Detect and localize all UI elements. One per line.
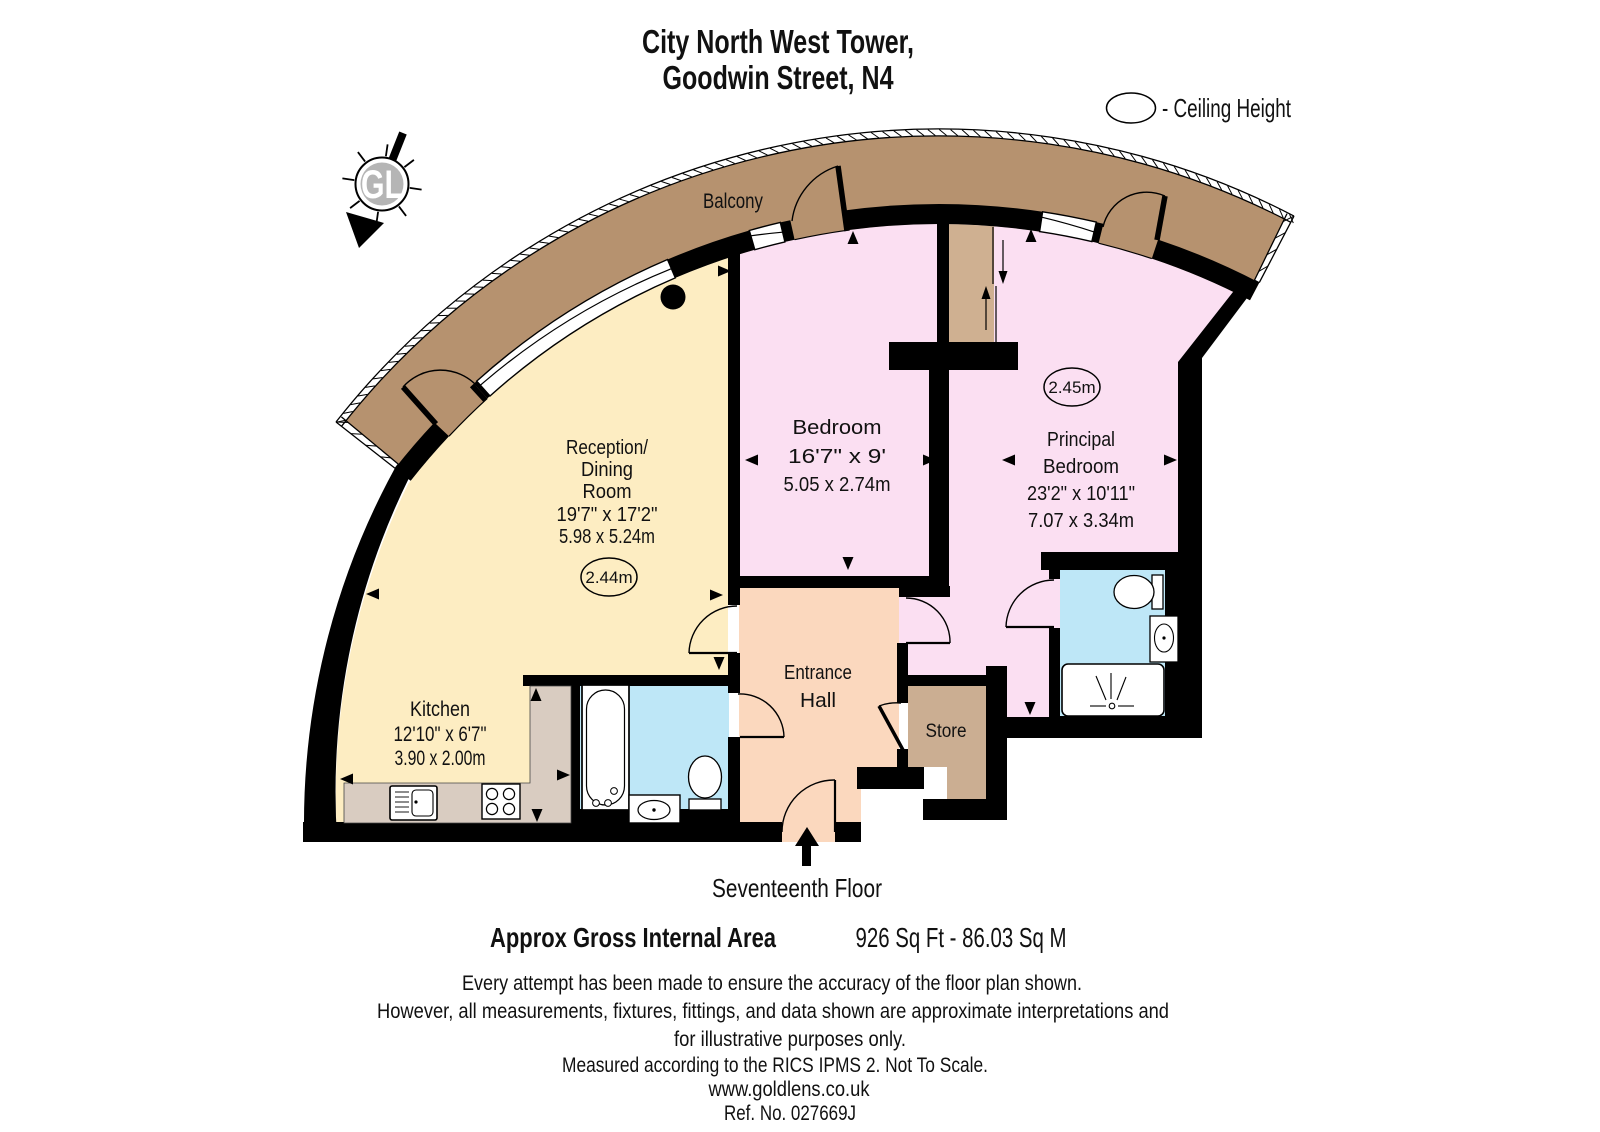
svg-text:GL: GL (361, 163, 403, 207)
svg-text:Bedroom: Bedroom (793, 417, 882, 439)
svg-text:16'7" x 9': 16'7" x 9' (788, 446, 886, 468)
svg-text:5.98 x 5.24m: 5.98 x 5.24m (559, 526, 655, 548)
svg-text:23'2" x 10'11": 23'2" x 10'11" (1027, 483, 1135, 505)
svg-text:19'7" x 17'2": 19'7" x 17'2" (557, 504, 658, 526)
svg-text:926 Sq Ft - 86.03 Sq M: 926 Sq Ft - 86.03 Sq M (856, 922, 1067, 953)
svg-text:Principal: Principal (1047, 429, 1115, 451)
svg-text:2.45m: 2.45m (1048, 378, 1095, 397)
svg-text:Store: Store (926, 721, 967, 742)
svg-text:Ref. No. 027669J: Ref. No. 027669J (724, 1102, 856, 1125)
svg-text:Room: Room (583, 481, 632, 503)
svg-text:for illustrative purposes only: for illustrative purposes only. (674, 1028, 906, 1051)
svg-text:Balcony: Balcony (703, 190, 763, 213)
svg-text:5.05 x 2.74m: 5.05 x 2.74m (784, 474, 891, 496)
svg-text:3.90 x 2.00m: 3.90 x 2.00m (395, 747, 486, 770)
svg-text:Every attempt has been made to: Every attempt has been made to ensure th… (462, 972, 1082, 995)
svg-text:Dining: Dining (581, 459, 633, 481)
svg-text:Kitchen: Kitchen (410, 698, 470, 721)
svg-text:2.44m: 2.44m (585, 568, 632, 587)
svg-text:Seventeenth Floor: Seventeenth Floor (712, 873, 882, 903)
svg-text:www.goldlens.co.uk: www.goldlens.co.uk (708, 1078, 870, 1101)
svg-text:Reception/: Reception/ (566, 437, 648, 459)
svg-text:Entrance: Entrance (784, 662, 852, 684)
svg-text:Approx Gross Internal Area: Approx Gross Internal Area (490, 922, 776, 953)
svg-text:Measured according to the RICS: Measured according to the RICS IPMS 2. N… (562, 1054, 988, 1077)
svg-text:However, all measurements, fix: However, all measurements, fixtures, fit… (377, 1000, 1169, 1023)
svg-text:7.07 x 3.34m: 7.07 x 3.34m (1028, 510, 1134, 532)
svg-text:12'10" x 6'7": 12'10" x 6'7" (394, 723, 487, 746)
svg-text:City North West Tower,: City North West Tower, (642, 23, 914, 60)
svg-text:Hall: Hall (800, 690, 836, 712)
svg-text:Bedroom: Bedroom (1043, 456, 1119, 478)
svg-text:- Ceiling Height: - Ceiling Height (1162, 93, 1292, 123)
svg-text:Goodwin Street, N4: Goodwin Street, N4 (663, 59, 894, 96)
